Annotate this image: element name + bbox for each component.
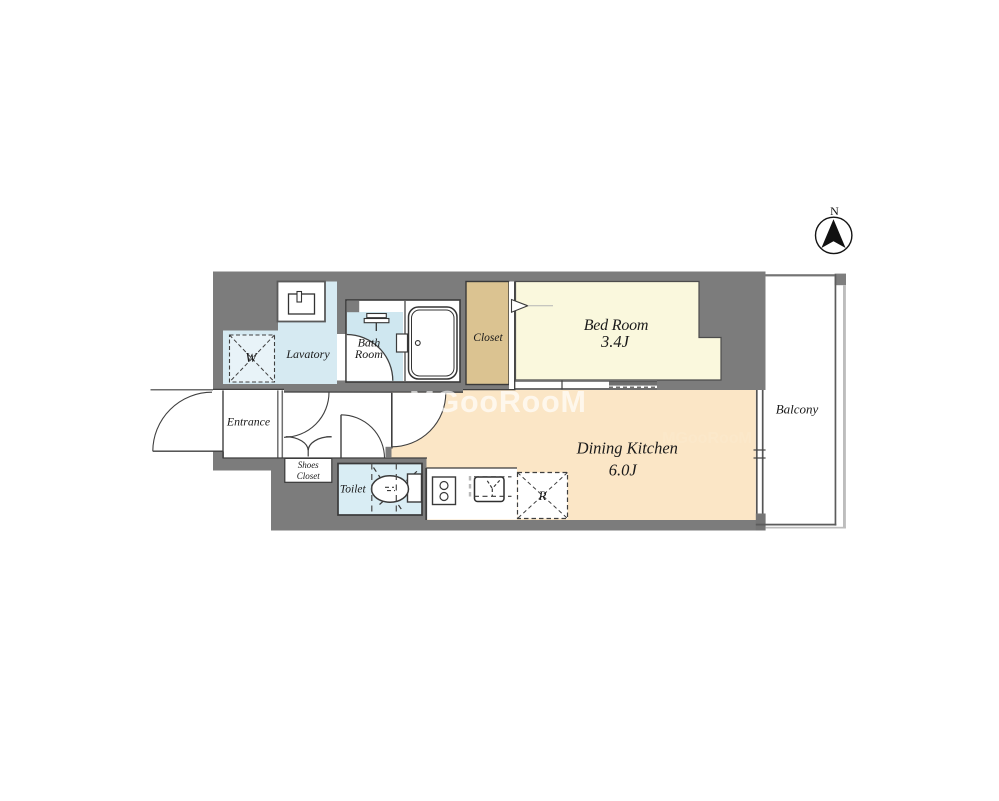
svg-text:Lavatory: Lavatory xyxy=(285,347,330,361)
svg-text:Closet: Closet xyxy=(473,332,503,344)
svg-text:Entrance: Entrance xyxy=(226,415,270,429)
svg-text:Toilet: Toilet xyxy=(340,483,367,495)
svg-text:3.4J: 3.4J xyxy=(600,332,630,351)
svg-text:Shoes: Shoes xyxy=(298,460,319,470)
svg-text:Balcony: Balcony xyxy=(776,402,819,417)
svg-text:W: W xyxy=(245,351,258,366)
svg-text:MGooRooM: MGooRooM xyxy=(409,385,587,419)
svg-text:MGooRooM: MGooRooM xyxy=(662,430,752,447)
svg-text:6.0J: 6.0J xyxy=(609,460,638,479)
svg-text:Room: Room xyxy=(354,347,383,361)
svg-text:N: N xyxy=(830,204,839,218)
svg-text:Closet: Closet xyxy=(297,471,321,481)
svg-text:R: R xyxy=(538,488,547,503)
